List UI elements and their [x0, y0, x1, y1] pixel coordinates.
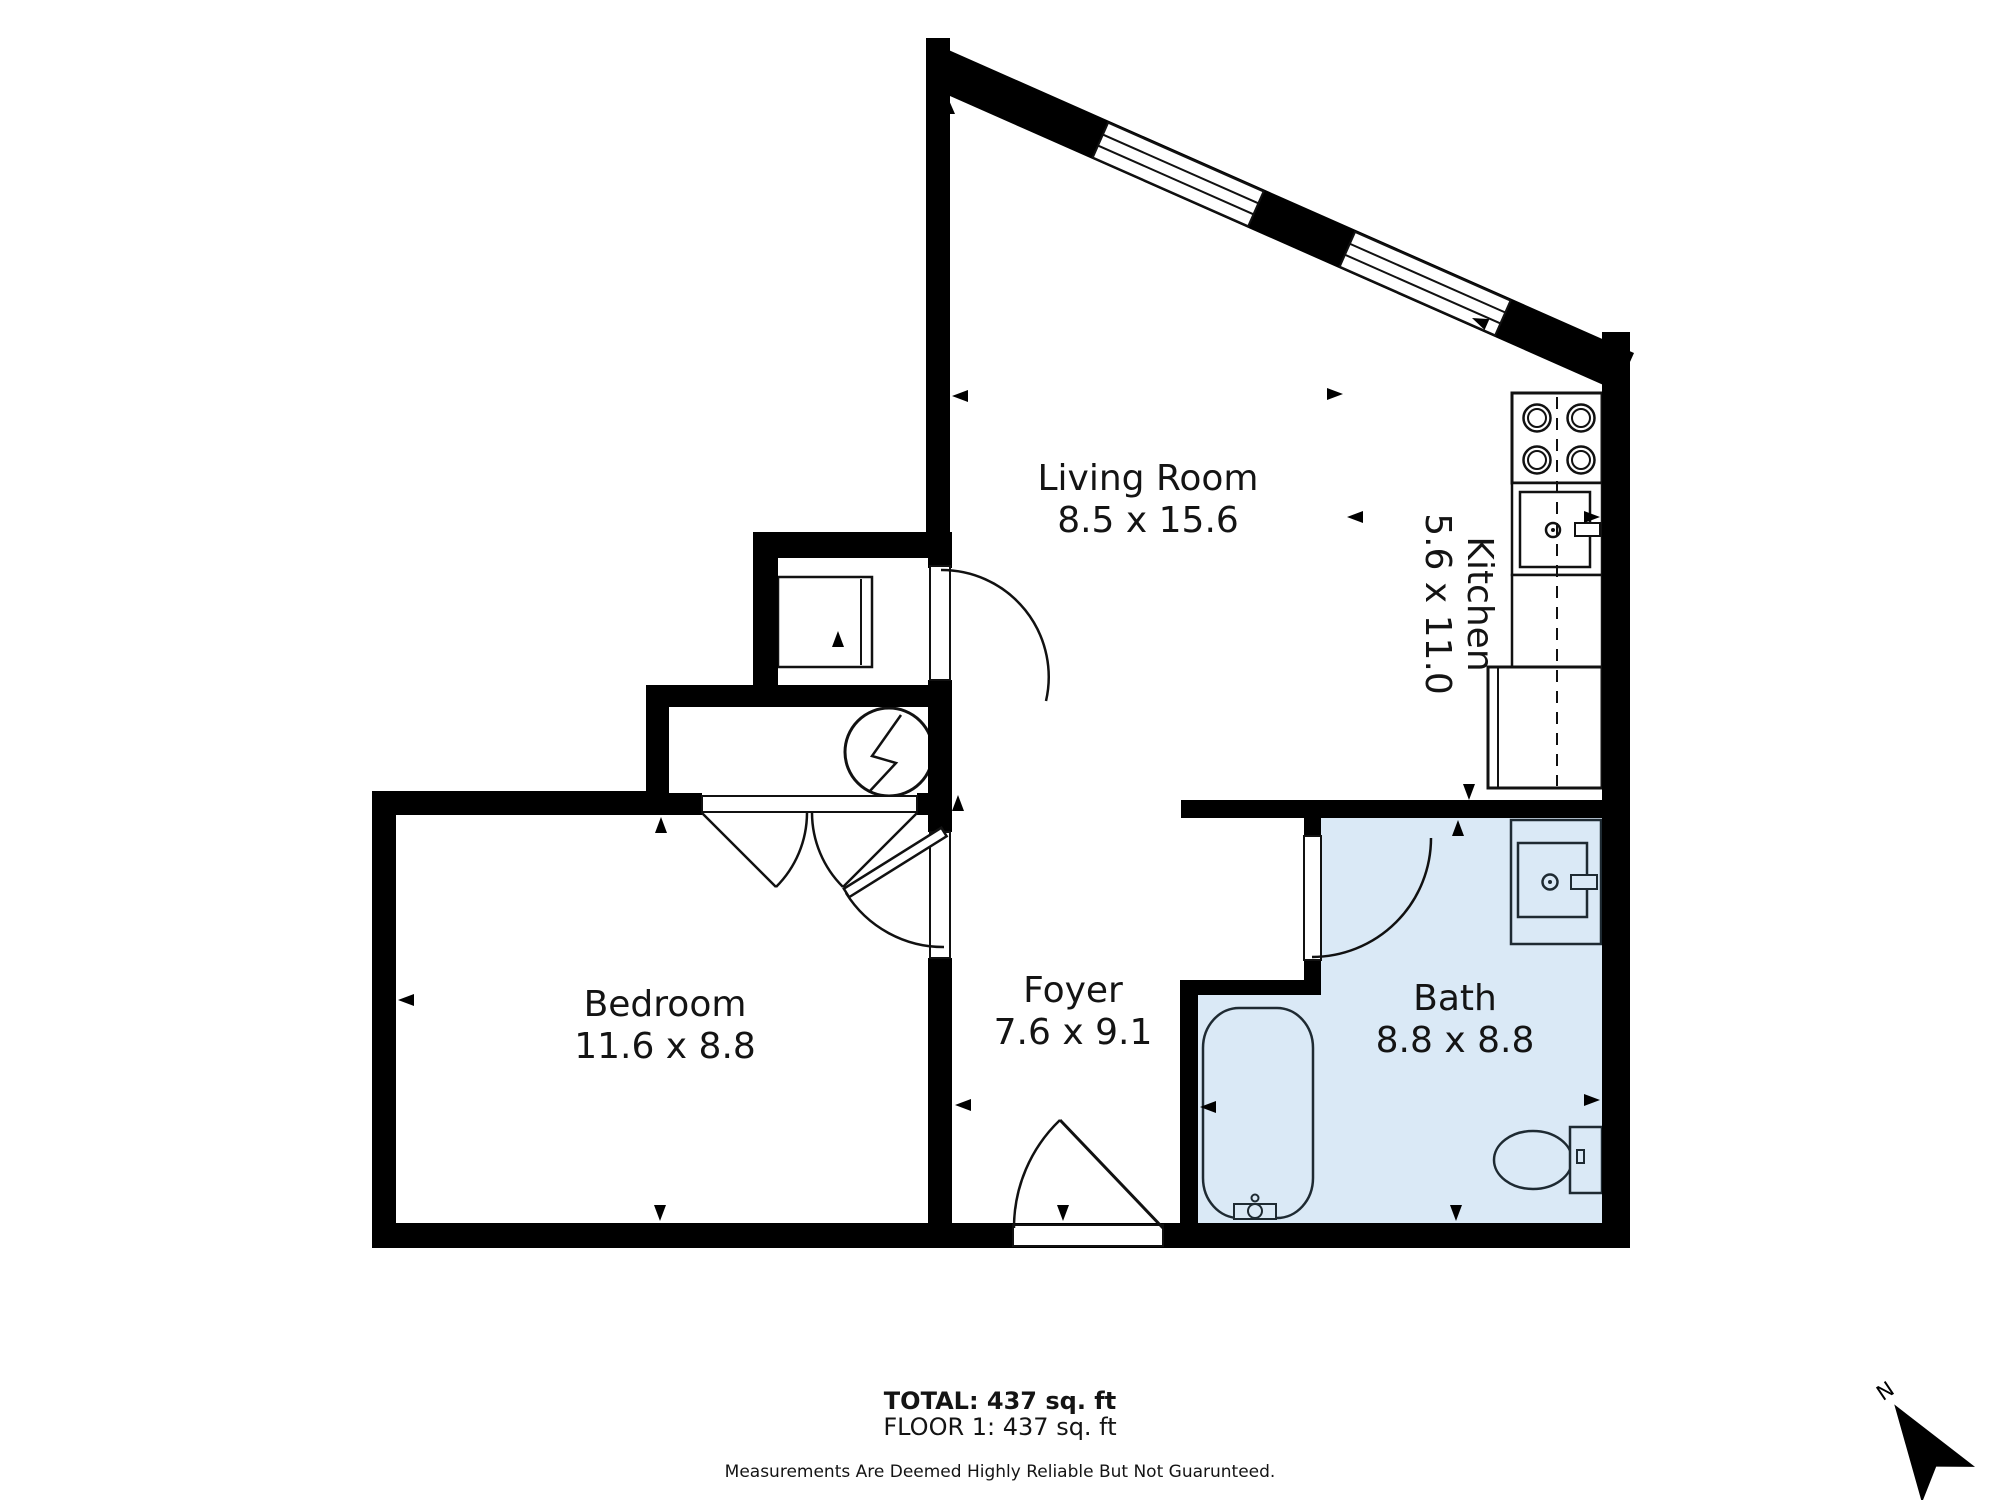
door-swing-arc — [1014, 1120, 1060, 1228]
burner-inner — [1528, 409, 1546, 427]
faucet-spout — [1571, 875, 1597, 889]
door-swing-arc — [941, 570, 1049, 701]
room-label-kitchen: Kitchen 5.6 x 11.0 — [1416, 513, 1500, 695]
faucet-spout — [1575, 523, 1600, 536]
dimension-arrow — [952, 795, 964, 811]
room-label-bath: Bath 8.8 x 8.8 — [1376, 978, 1535, 1062]
room-dims: 8.8 x 8.8 — [1376, 1020, 1535, 1062]
dimension-arrow — [955, 1099, 971, 1111]
closet-box-icon — [778, 577, 872, 667]
door-swing-arc — [776, 813, 807, 887]
wall-closet-header-left — [669, 793, 702, 815]
door-opening — [930, 832, 950, 958]
kitchen-fixtures — [1488, 393, 1602, 788]
room-name: Foyer — [994, 970, 1153, 1012]
wall-alcove-top — [1180, 980, 1321, 995]
dimension-arrow — [952, 390, 968, 402]
room-dims: 11.6 x 8.8 — [574, 1026, 756, 1068]
door-leaf-line — [702, 813, 776, 887]
room-dims: 7.6 x 9.1 — [994, 1012, 1153, 1054]
faucet-dot — [1548, 880, 1552, 884]
dimension-arrow — [1463, 784, 1475, 800]
window — [1093, 123, 1264, 226]
wall-closet-left — [753, 532, 778, 707]
burner-inner — [1572, 451, 1590, 469]
wall-closet-header-right — [917, 793, 952, 815]
floorplan-canvas: N Living Room 8.5 x 15.6 Kitchen 5.6 x 1… — [0, 0, 2000, 1500]
wall-alcove-left — [1180, 980, 1198, 1223]
wall-right — [1602, 332, 1630, 1248]
room-dims: 8.5 x 15.6 — [1038, 500, 1259, 542]
tub-faucet — [1248, 1204, 1262, 1218]
wall-bath-top — [1181, 800, 1630, 818]
burner-inner — [1528, 451, 1546, 469]
wall-bathdoor-stub-top — [1304, 818, 1321, 836]
room-name: Kitchen — [1458, 513, 1500, 695]
room-dims: 5.6 x 11.0 — [1416, 513, 1458, 695]
faucet-dot — [1551, 528, 1555, 532]
dimension-arrow — [1057, 1205, 1069, 1221]
wall-divider-bottom — [928, 958, 952, 1223]
refrigerator-body — [1488, 667, 1602, 788]
bath-tub-alcove-fill — [1198, 995, 1321, 1223]
footer-total-area: TOTAL: 437 sq. ft — [0, 1387, 2000, 1415]
door-swing-arc — [812, 813, 843, 887]
dimension-arrow — [1347, 511, 1363, 523]
entry-door — [1013, 1120, 1163, 1246]
door-leaf-line — [1060, 1120, 1163, 1228]
room-name: Living Room — [1038, 458, 1259, 500]
dimension-arrow — [654, 1205, 666, 1221]
closet-box — [778, 577, 872, 667]
dimension-arrow — [1327, 388, 1343, 400]
dimension-arrow — [655, 817, 667, 833]
water-heater-circle — [845, 708, 933, 796]
door-leaf — [1304, 836, 1321, 960]
dimension-arrow — [398, 994, 414, 1006]
toilet-tank — [1570, 1127, 1602, 1193]
wall-closet-top — [753, 532, 952, 558]
floorplan-drawing: N — [0, 0, 2000, 1500]
room-name: Bath — [1376, 978, 1535, 1020]
room-label-living-room: Living Room 8.5 x 15.6 — [1038, 458, 1259, 542]
door-leaf — [930, 566, 950, 680]
wall-diagonal — [926, 40, 1634, 391]
wall-living-left — [926, 38, 950, 558]
water-heater-icon — [845, 708, 933, 796]
door-opening — [1013, 1225, 1163, 1246]
room-label-foyer: Foyer 7.6 x 9.1 — [994, 970, 1153, 1054]
door-opening — [702, 796, 917, 812]
room-name: Bedroom — [574, 984, 756, 1026]
closet-door — [930, 566, 1049, 701]
bedroom-door — [844, 828, 950, 958]
wall-bedroom-left — [372, 791, 396, 1223]
wall-bottom — [372, 1223, 1630, 1248]
wall-corridor-top — [646, 685, 935, 707]
burner-inner — [1572, 409, 1590, 427]
footer-disclaimer: Measurements Are Deemed Highly Reliable … — [0, 1462, 2000, 1482]
refrigerator-icon — [1488, 667, 1602, 788]
footer-floor-area: FLOOR 1: 437 sq. ft — [0, 1413, 2000, 1441]
window-frame — [1093, 123, 1264, 226]
wall-bedroom-top — [372, 791, 669, 815]
room-label-bedroom: Bedroom 11.6 x 8.8 — [574, 984, 756, 1068]
